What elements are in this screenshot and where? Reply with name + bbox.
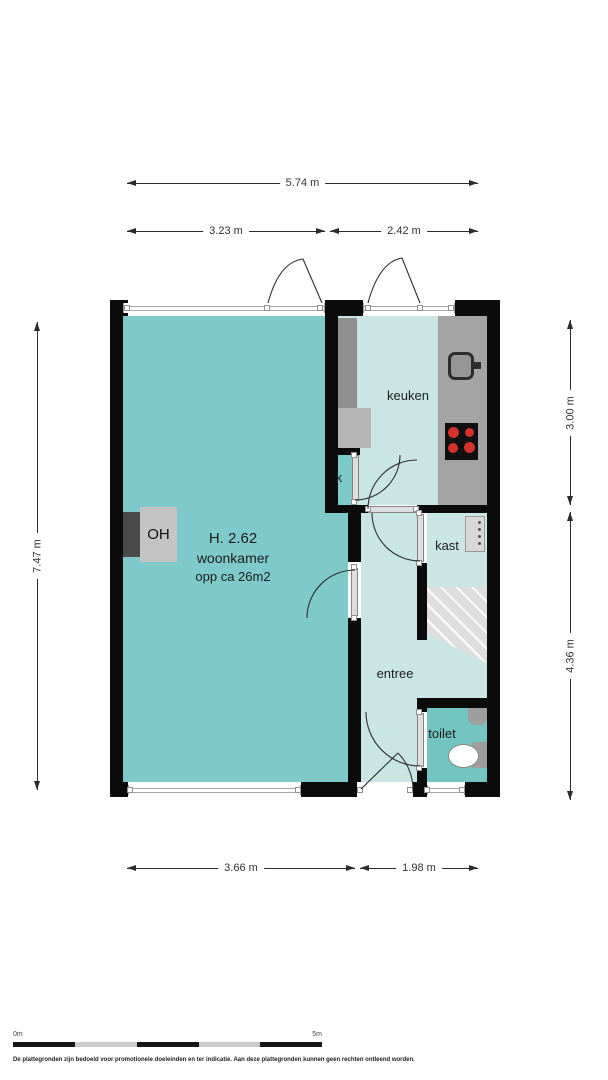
room-name-entree: entree — [364, 666, 426, 681]
room-name-toilet: toilet — [418, 726, 466, 741]
woonkamer-door-arc — [307, 570, 355, 618]
room-name-woonkamer: woonkamer — [160, 549, 306, 568]
disclaimer-text: De plattegronden zijn bedoeld voor promo… — [13, 1057, 598, 1063]
room-name-closet: k — [332, 470, 346, 485]
garden-door-arc-left — [268, 259, 322, 303]
scale-segment — [75, 1042, 137, 1047]
ceiling-height-label: H. 2.62 — [160, 528, 306, 549]
front-door-arc — [398, 753, 413, 789]
scale-start-label: 0m — [13, 1031, 23, 1038]
front-door-leaf — [361, 753, 398, 789]
floorplan-canvas: 5.74 m 3.23 m 2.42 m 7.47 m 3.00 m 4.36 … — [0, 0, 608, 1080]
keuken-door-arc — [368, 460, 417, 509]
scale-segment — [199, 1042, 260, 1047]
room-name-keuken: keuken — [380, 388, 436, 403]
scale-end-label: 5m — [312, 1031, 322, 1038]
room-name-kast: kast — [426, 538, 468, 553]
scale-bar: 0m 5m — [13, 1031, 322, 1048]
woonkamer-label-block: H. 2.62 woonkamer opp ca 26m2 — [160, 528, 306, 586]
closet-door-arc — [355, 455, 400, 500]
kast-door-arc — [372, 513, 420, 561]
area-label: opp ca 26m2 — [160, 568, 306, 586]
scale-segment — [13, 1042, 75, 1047]
scale-segment — [137, 1042, 199, 1047]
scale-segment — [260, 1042, 322, 1047]
garden-door-arc-right — [368, 258, 420, 303]
